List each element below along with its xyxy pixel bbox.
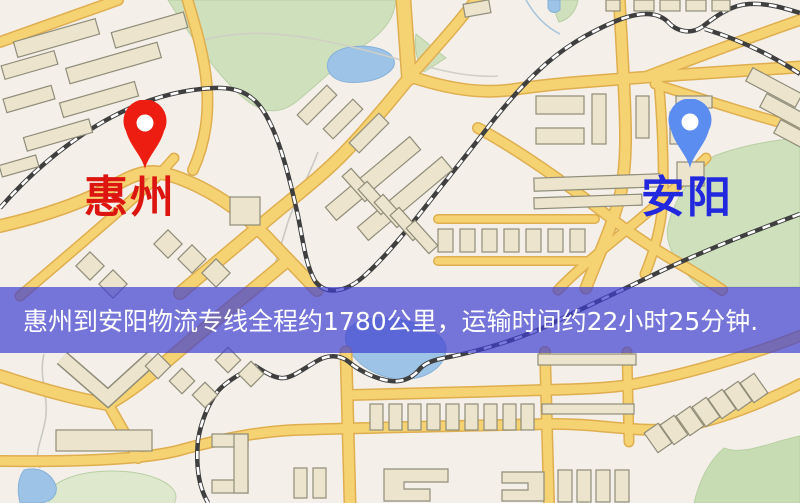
route-info-text: 惠州到安阳物流专线全程约1780公里，运输时间约22小时25分钟.: [0, 302, 758, 338]
destination-map-pin-icon[interactable]: [667, 99, 713, 169]
map-screenshot: 惠州 安阳 惠州到安阳物流专线全程约1780公里，运输时间约22小时25分钟.: [0, 0, 800, 503]
route-info-banner: 惠州到安阳物流专线全程约1780公里，运输时间约22小时25分钟.: [0, 287, 800, 353]
map-canvas[interactable]: [0, 0, 800, 503]
origin-map-pin-icon[interactable]: [122, 100, 168, 170]
destination-city-label: 安阳: [641, 176, 733, 220]
origin-city-label: 惠州: [84, 176, 176, 220]
